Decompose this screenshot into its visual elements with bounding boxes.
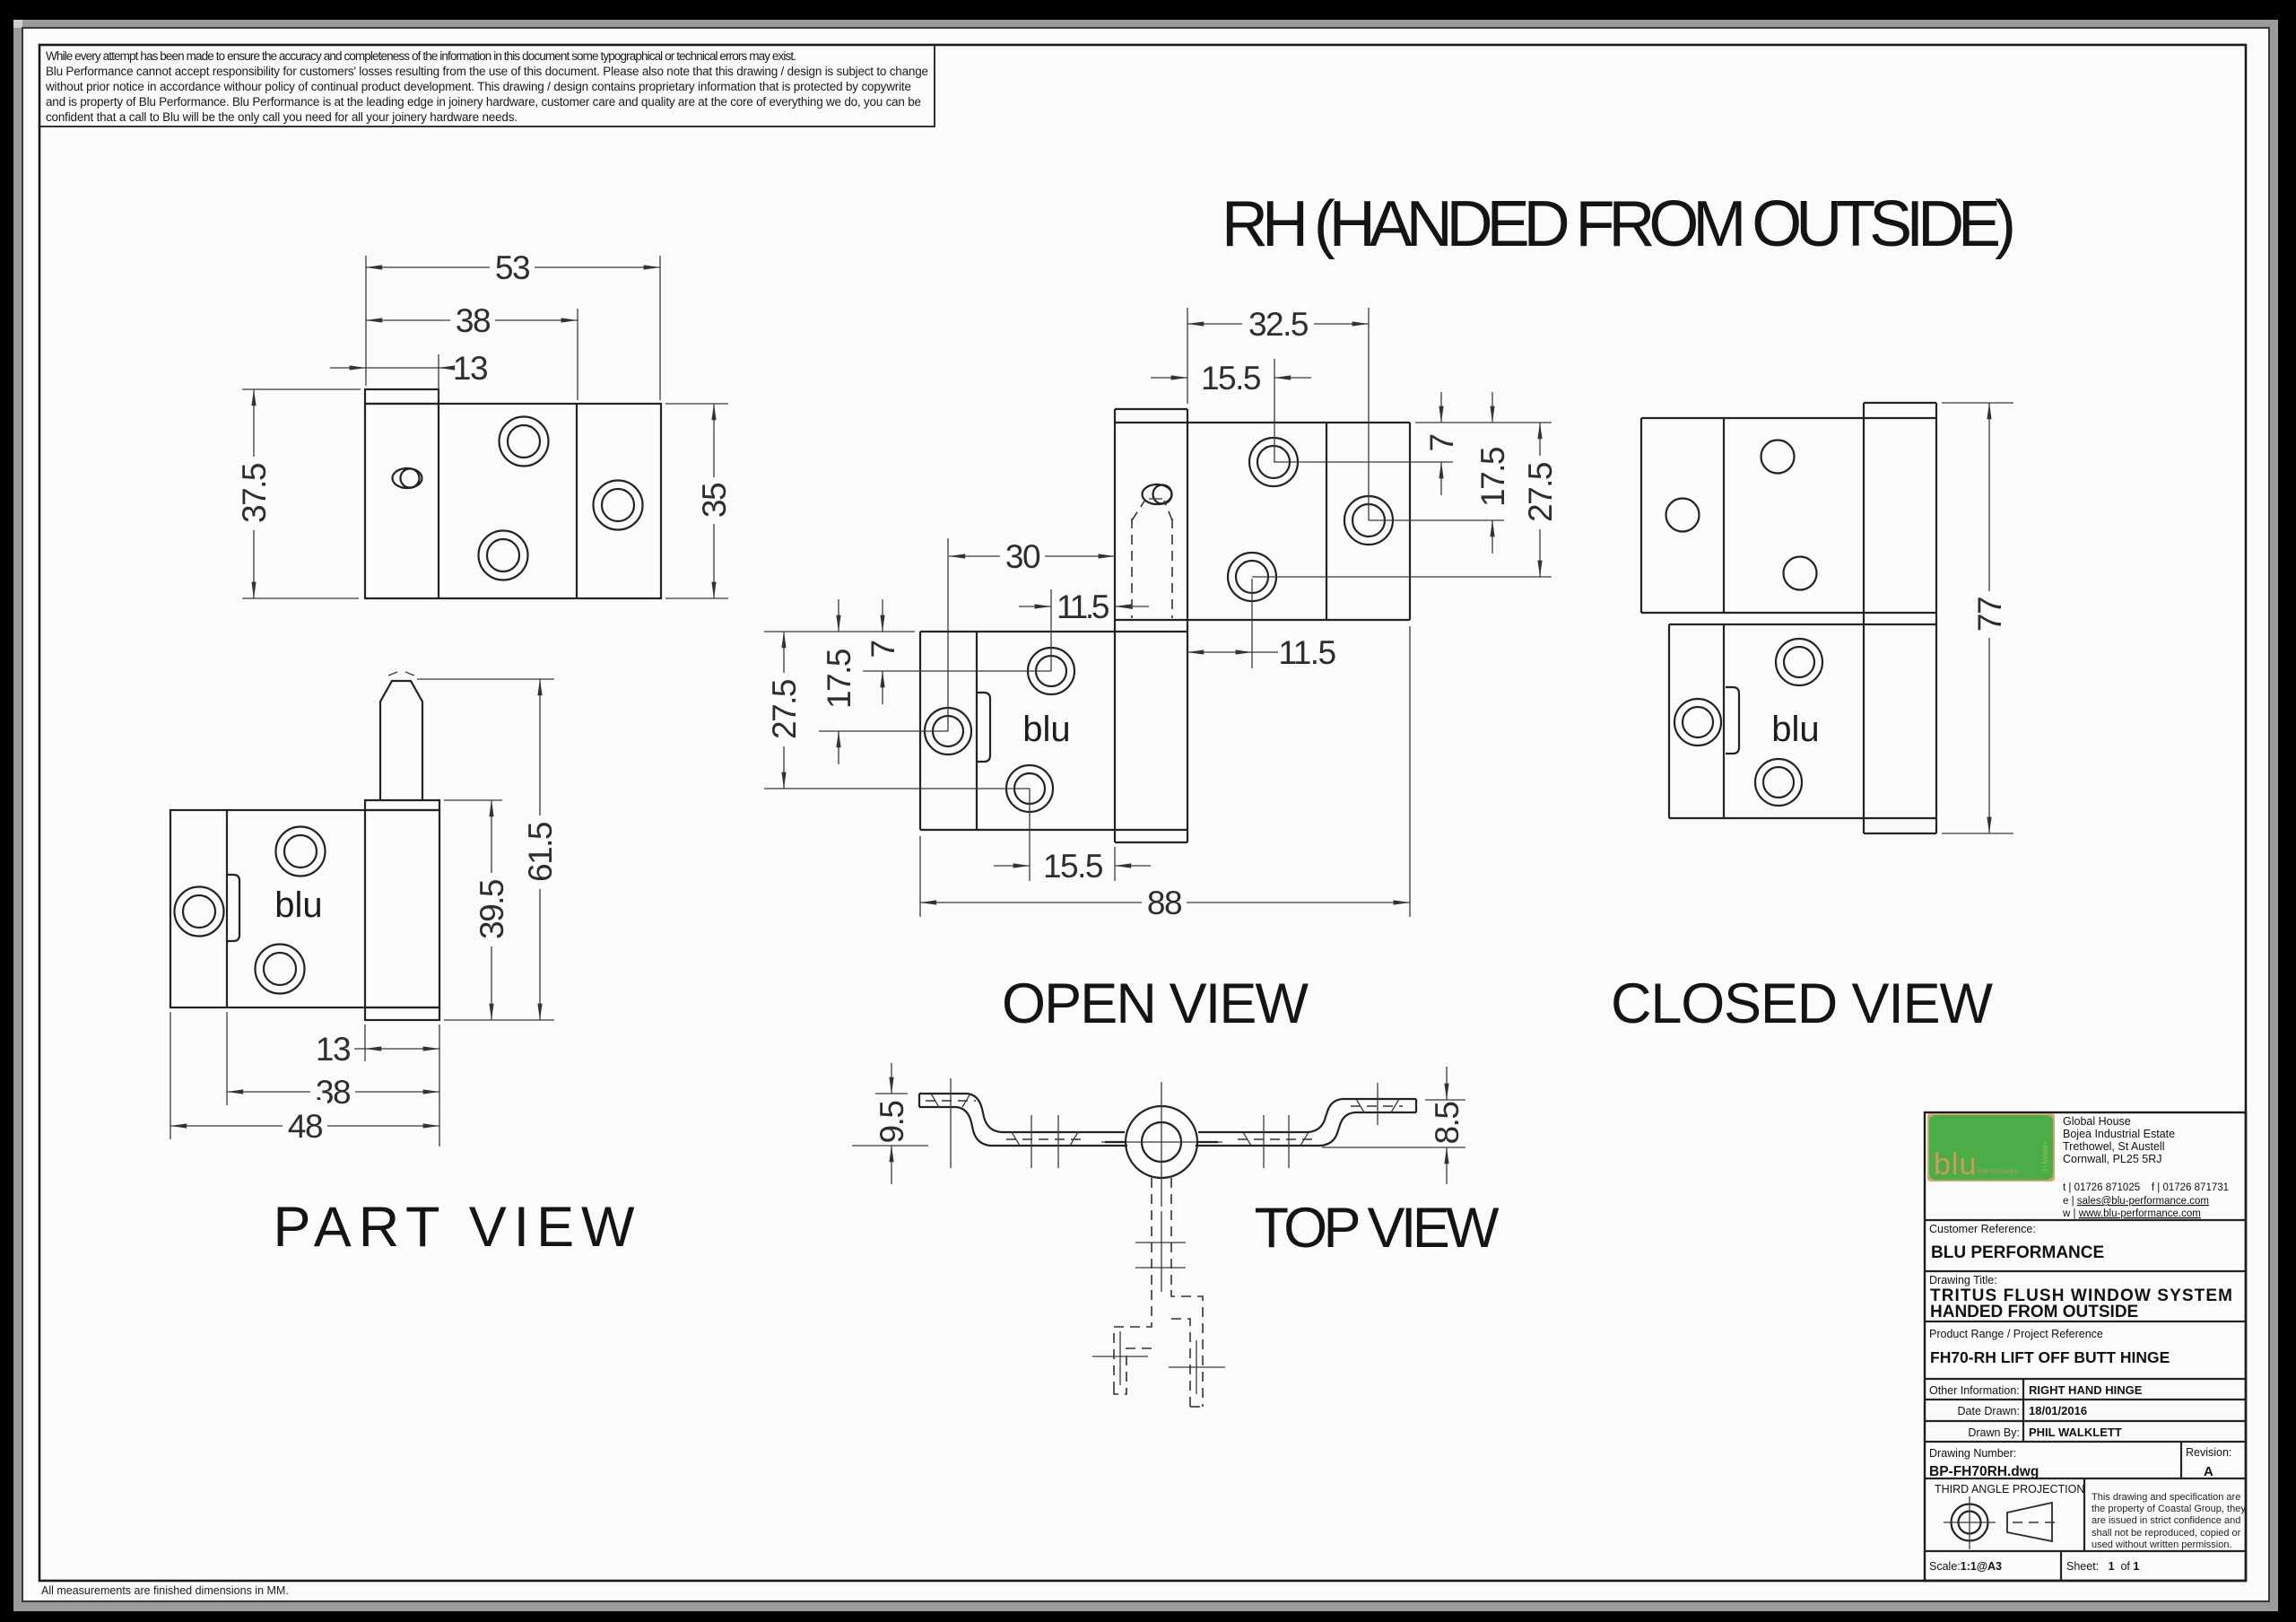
svg-text:blu: blu [274, 885, 322, 925]
svg-text:Bojea Industrial Estate: Bojea Industrial Estate [2063, 1128, 2175, 1140]
svg-text:and is property of Blu Perform: and is property of Blu Performance. Blu … [46, 95, 921, 109]
svg-text:used without written permissio: used without written permission. [2092, 1539, 2232, 1550]
svg-text:the property of Coastal Group,: the property of Coastal Group, they [2092, 1504, 2246, 1514]
svg-text:35: 35 [696, 483, 733, 518]
svg-text:shall not be reproduced, copie: shall not be reproduced, copied or [2092, 1528, 2241, 1539]
svg-text:BLU PERFORMANCE: BLU PERFORMANCE [1931, 1243, 2104, 1262]
svg-text:Other Information:: Other Information: [1929, 1384, 2020, 1397]
svg-text:18/01/2016: 18/01/2016 [2029, 1404, 2087, 1417]
svg-text:11.5: 11.5 [1278, 634, 1335, 671]
svg-text:blu: blu [1771, 710, 1819, 749]
svg-text:Drawing Number:: Drawing Number: [1929, 1447, 2016, 1460]
svg-text:Trethowel, St Austell: Trethowel, St Austell [2063, 1140, 2164, 1153]
svg-text:15.5: 15.5 [1043, 848, 1103, 885]
svg-text:27.5: 27.5 [766, 679, 803, 739]
svg-text:17.5: 17.5 [1474, 447, 1511, 507]
svg-text:37.5: 37.5 [236, 463, 273, 523]
svg-text:77: 77 [1971, 597, 2008, 632]
svg-text:Sheet: 1 of 1: Sheet: 1 of 1 [2066, 1560, 2139, 1573]
svg-text:7: 7 [865, 641, 901, 658]
svg-text:Scale:1:1@A3: Scale:1:1@A3 [1929, 1560, 2002, 1573]
svg-text:Revision:: Revision: [2186, 1446, 2231, 1459]
svg-text:RIGHT HAND HINGE: RIGHT HAND HINGE [2029, 1383, 2143, 1397]
svg-text:HANDED FROM OUTSIDE: HANDED FROM OUTSIDE [1930, 1303, 2138, 1321]
svg-text:w | www.blu-performance.com: w | www.blu-performance.com [2062, 1208, 2201, 1219]
svg-text:blu: blu [1022, 710, 1070, 749]
svg-text:Product Range / Project Refere: Product Range / Project Reference [1929, 1328, 2103, 1340]
svg-text:Drawing Title:: Drawing Title: [1929, 1274, 1997, 1286]
svg-text:88: 88 [1147, 885, 1181, 921]
svg-text:While every attempt has been m: While every attempt has been made to ens… [46, 49, 796, 63]
svg-text:CLOSED VIEW: CLOSED VIEW [1611, 972, 1994, 1035]
svg-text:THIRD ANGLE PROJECTION: THIRD ANGLE PROJECTION [1935, 1483, 2084, 1496]
svg-text:13: 13 [316, 1031, 350, 1068]
svg-text:are issued in strict confidenc: are issued in strict confidence and [2092, 1515, 2240, 1526]
svg-text:27.5: 27.5 [1522, 462, 1559, 522]
svg-text:BP-FH70RH.dwg: BP-FH70RH.dwg [1929, 1464, 2039, 1479]
svg-text:in Motion: in Motion [2041, 1143, 2049, 1172]
svg-text:This drawing and specification: This drawing and specification are [2092, 1492, 2240, 1503]
svg-text:61.5: 61.5 [522, 822, 559, 882]
svg-text:TOP VIEW: TOP VIEW [1255, 1197, 1500, 1260]
svg-text:17.5: 17.5 [821, 649, 857, 709]
svg-text:OPEN VIEW: OPEN VIEW [1002, 972, 1309, 1035]
svg-text:13: 13 [453, 350, 487, 387]
svg-text:Performance: Performance [1978, 1167, 2019, 1175]
svg-text:FH70-RH LIFT OFF BUTT HINGE: FH70-RH LIFT OFF BUTT HINGE [1930, 1348, 2170, 1366]
svg-text:e | sales@blu-performance.com: e | sales@blu-performance.com [2063, 1196, 2209, 1207]
svg-text:PART VIEW: PART VIEW [274, 1196, 636, 1259]
svg-text:Customer Reference:: Customer Reference: [1929, 1223, 2036, 1235]
svg-text:48: 48 [288, 1108, 322, 1145]
svg-text:without prior notice in accord: without prior notice in accordance witho… [45, 80, 911, 93]
svg-text:53: 53 [495, 249, 529, 286]
svg-text:t | 01726 871025 f | 01726: t | 01726 871025 f | 01726 871731 [2063, 1182, 2229, 1193]
svg-text:All measurements are finished: All measurements are finished dimensions… [41, 1584, 289, 1597]
svg-text:32.5: 32.5 [1248, 306, 1309, 343]
svg-text:confident that a call to Blu w: confident that a call to Blu will be the… [46, 110, 517, 124]
svg-text:Cornwall, PL25 5RJ: Cornwall, PL25 5RJ [2063, 1153, 2161, 1165]
svg-text:15.5: 15.5 [1201, 360, 1261, 397]
svg-text:7: 7 [1423, 434, 1460, 451]
svg-text:39.5: 39.5 [474, 879, 510, 939]
svg-text:blu: blu [1934, 1147, 1977, 1182]
svg-text:Date Drawn:: Date Drawn: [1958, 1405, 2020, 1417]
svg-text:Global House: Global House [2063, 1115, 2131, 1128]
svg-text:38: 38 [456, 302, 490, 339]
svg-text:RH (HANDED FROM OUTSIDE): RH (HANDED FROM OUTSIDE) [1222, 188, 2016, 260]
svg-text:9.5: 9.5 [874, 1101, 910, 1144]
svg-text:11.5: 11.5 [1057, 589, 1109, 625]
svg-text:A: A [2204, 1464, 2213, 1479]
svg-text:30: 30 [1005, 538, 1040, 575]
svg-text:Blu Performance cannot accept: Blu Performance cannot accept responsibi… [46, 65, 928, 78]
svg-text:Drawn By:: Drawn By: [1968, 1426, 2020, 1439]
svg-text:PHIL WALKLETT: PHIL WALKLETT [2029, 1426, 2122, 1439]
svg-text:8.5: 8.5 [1429, 1102, 1465, 1145]
